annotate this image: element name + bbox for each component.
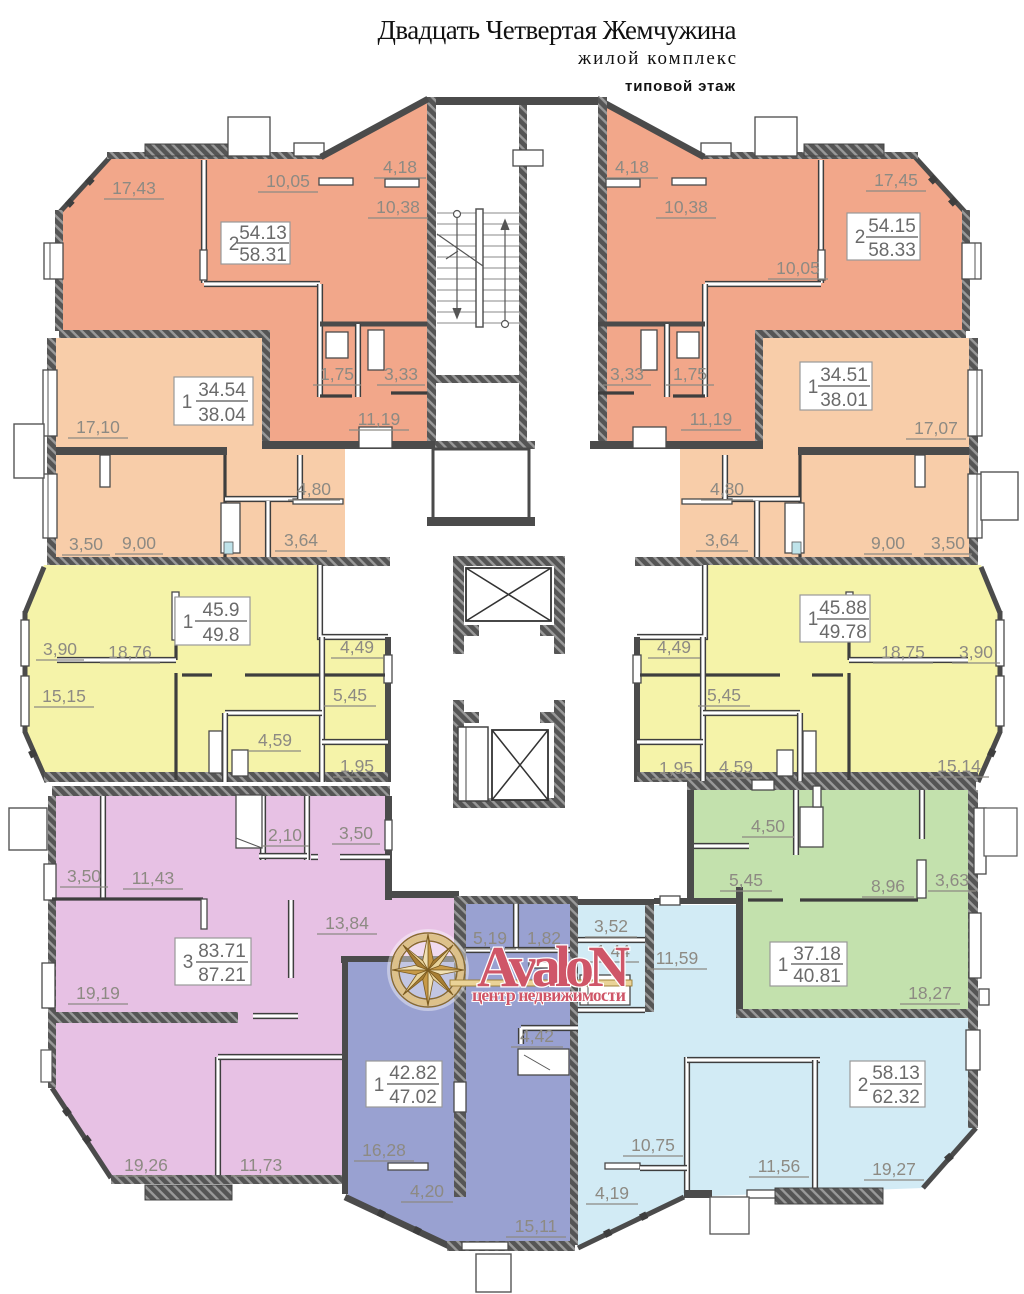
svg-text:34.51: 34.51	[820, 365, 868, 386]
svg-text:1: 1	[808, 609, 819, 630]
svg-text:45.9: 45.9	[203, 600, 240, 621]
svg-text:10,75: 10,75	[631, 1135, 675, 1155]
svg-text:3,90: 3,90	[43, 639, 77, 659]
svg-text:3,64: 3,64	[284, 530, 318, 550]
svg-text:2,10: 2,10	[268, 825, 302, 845]
svg-text:1: 1	[183, 612, 194, 633]
svg-text:5,45: 5,45	[729, 870, 763, 890]
svg-text:42.82: 42.82	[389, 1063, 437, 1084]
svg-text:4,19: 4,19	[595, 1183, 629, 1203]
svg-text:18,76: 18,76	[108, 642, 152, 662]
svg-text:11,73: 11,73	[240, 1155, 283, 1175]
svg-text:38.01: 38.01	[820, 390, 868, 411]
svg-text:1: 1	[182, 392, 193, 413]
svg-text:17,10: 17,10	[76, 417, 120, 437]
svg-text:1,95: 1,95	[340, 756, 374, 776]
svg-text:4,80: 4,80	[297, 479, 331, 499]
svg-text:Двадцать Четвертая Жемчужина: Двадцать Четвертая Жемчужина	[378, 15, 737, 45]
svg-text:40.81: 40.81	[793, 966, 841, 987]
svg-text:2: 2	[858, 1075, 869, 1096]
svg-text:13,84: 13,84	[325, 913, 369, 933]
svg-text:34.54: 34.54	[198, 380, 246, 401]
svg-text:9,00: 9,00	[122, 533, 156, 553]
svg-text:2: 2	[855, 227, 866, 248]
svg-text:3,33: 3,33	[610, 364, 644, 384]
svg-text:3,63: 3,63	[935, 870, 969, 890]
svg-text:4,18: 4,18	[383, 157, 417, 177]
svg-text:58.31: 58.31	[239, 245, 287, 266]
svg-text:3,50: 3,50	[339, 823, 373, 843]
svg-text:9,00: 9,00	[871, 533, 905, 553]
svg-text:4,50: 4,50	[751, 816, 785, 836]
svg-text:87.21: 87.21	[198, 965, 246, 986]
svg-text:18,75: 18,75	[881, 642, 925, 662]
svg-text:17,43: 17,43	[112, 178, 156, 198]
svg-text:58.13: 58.13	[872, 1063, 920, 1084]
svg-text:11,59: 11,59	[656, 948, 699, 968]
svg-text:10,38: 10,38	[664, 197, 708, 217]
svg-text:10,05: 10,05	[776, 258, 820, 278]
svg-text:15,15: 15,15	[42, 686, 86, 706]
svg-text:4,59: 4,59	[719, 757, 753, 777]
svg-text:5,45: 5,45	[333, 685, 367, 705]
svg-text:62.32: 62.32	[872, 1087, 920, 1108]
svg-text:17,07: 17,07	[914, 418, 958, 438]
svg-text:47.02: 47.02	[389, 1087, 437, 1108]
svg-text:19,26: 19,26	[124, 1155, 168, 1175]
svg-text:19,27: 19,27	[872, 1159, 916, 1179]
svg-text:4,20: 4,20	[410, 1181, 444, 1201]
svg-text:типовой этаж: типовой этаж	[625, 78, 735, 95]
svg-text:3,33: 3,33	[384, 364, 418, 384]
svg-text:4,42: 4,42	[520, 1026, 554, 1046]
svg-text:1: 1	[808, 377, 819, 398]
svg-text:1,75: 1,75	[673, 364, 707, 384]
svg-text:10,05: 10,05	[266, 171, 310, 191]
svg-text:37.18: 37.18	[793, 944, 841, 965]
svg-text:83.71: 83.71	[198, 941, 246, 962]
svg-text:49.78: 49.78	[819, 622, 867, 643]
svg-text:15,11: 15,11	[515, 1216, 558, 1236]
svg-text:54.15: 54.15	[868, 216, 916, 237]
svg-text:5,45: 5,45	[707, 685, 741, 705]
svg-text:18,27: 18,27	[908, 983, 952, 1003]
svg-text:11,56: 11,56	[758, 1156, 801, 1176]
svg-text:3,90: 3,90	[959, 642, 993, 662]
svg-text:1,95: 1,95	[659, 758, 693, 778]
svg-text:10,38: 10,38	[376, 197, 420, 217]
svg-text:1: 1	[778, 955, 789, 976]
svg-text:54.13: 54.13	[239, 223, 287, 244]
svg-text:3,50: 3,50	[67, 866, 101, 886]
svg-text:3,50: 3,50	[69, 534, 103, 554]
svg-text:3,50: 3,50	[931, 533, 965, 553]
svg-text:4,49: 4,49	[657, 637, 691, 657]
svg-text:17,45: 17,45	[874, 170, 918, 190]
svg-text:3,64: 3,64	[705, 530, 739, 550]
svg-text:1,75: 1,75	[320, 364, 354, 384]
svg-text:11,43: 11,43	[132, 868, 175, 888]
svg-text:4,49: 4,49	[340, 637, 374, 657]
svg-text:16,28: 16,28	[362, 1140, 406, 1160]
svg-text:3,52: 3,52	[594, 916, 628, 936]
svg-text:центр недвижимости: центр недвижимости	[472, 985, 626, 1005]
svg-text:4,59: 4,59	[258, 730, 292, 750]
svg-text:4,80: 4,80	[710, 479, 744, 499]
svg-text:19,19: 19,19	[76, 983, 120, 1003]
svg-text:15,14: 15,14	[937, 756, 981, 776]
svg-text:58.33: 58.33	[868, 240, 916, 261]
svg-text:2: 2	[229, 234, 240, 255]
svg-text:4,18: 4,18	[615, 157, 649, 177]
svg-text:1: 1	[374, 1075, 385, 1096]
svg-text:11,19: 11,19	[690, 409, 733, 429]
svg-text:38.04: 38.04	[198, 405, 246, 426]
svg-text:8,96: 8,96	[871, 876, 905, 896]
svg-text:49.8: 49.8	[203, 625, 240, 646]
svg-text:11,19: 11,19	[358, 409, 401, 429]
svg-text:45.88: 45.88	[819, 598, 867, 619]
svg-text:3: 3	[183, 952, 194, 973]
